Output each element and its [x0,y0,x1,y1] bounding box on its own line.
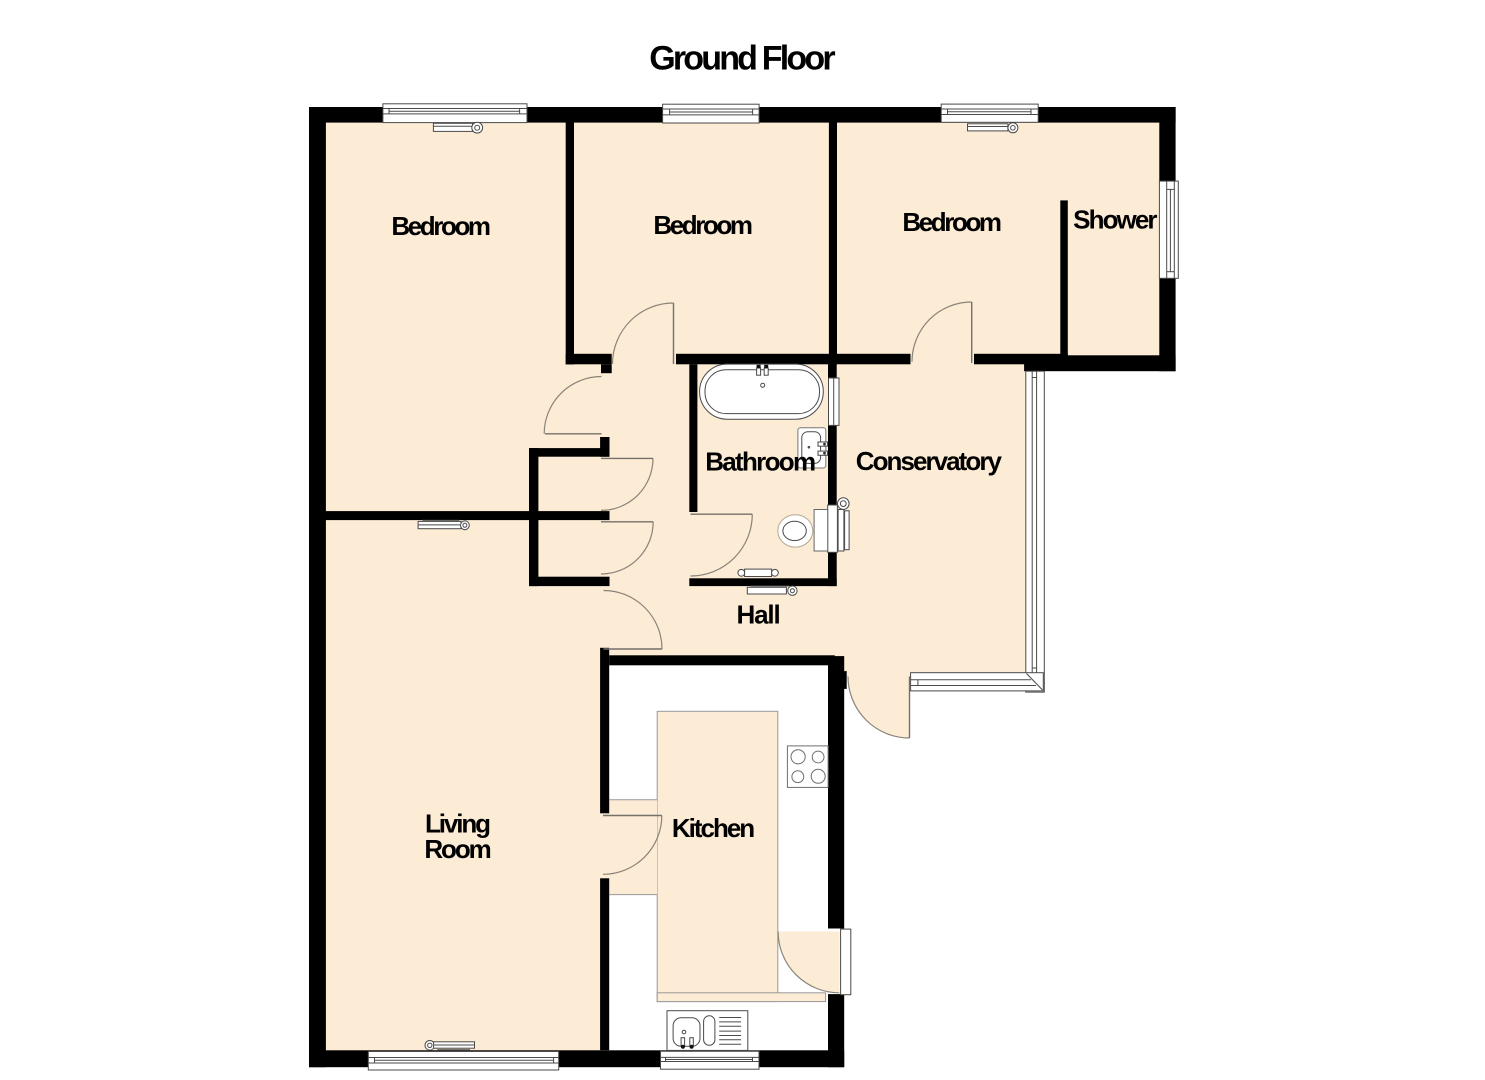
svg-text:Hall: Hall [736,600,779,630]
svg-text:Bathroom: Bathroom [705,446,815,476]
svg-text:Bedroom: Bedroom [902,207,1001,237]
svg-text:Bedroom: Bedroom [391,211,490,241]
svg-text:Shower: Shower [1073,205,1157,235]
svg-text:Room: Room [424,834,490,864]
svg-text:Conservatory: Conservatory [856,446,1003,476]
svg-text:Bedroom: Bedroom [653,210,752,240]
svg-text:Kitchen: Kitchen [672,813,754,843]
svg-text:Ground Floor: Ground Floor [649,39,835,77]
